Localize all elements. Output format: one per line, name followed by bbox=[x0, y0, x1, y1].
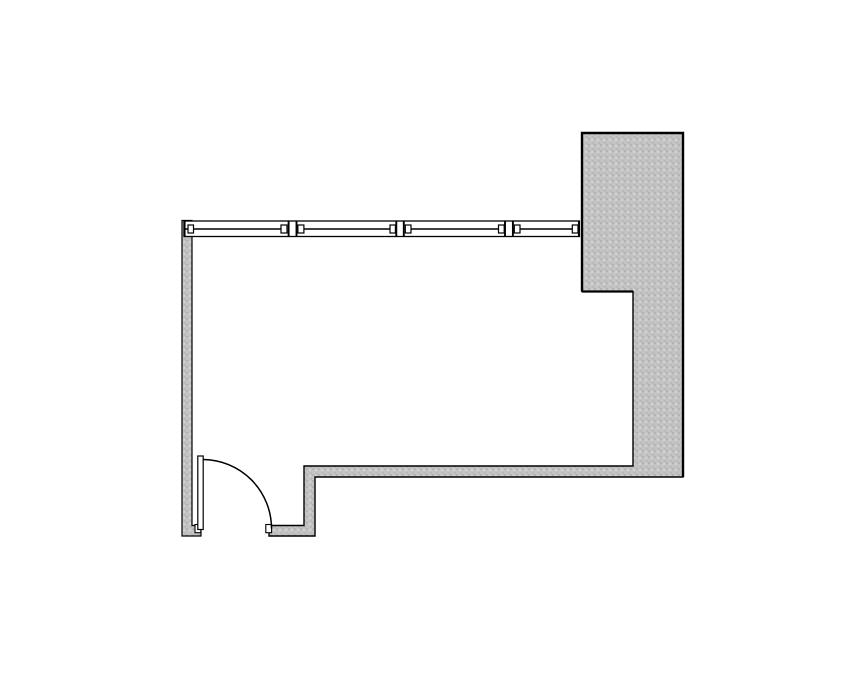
window-end-block bbox=[514, 225, 520, 233]
door-leaf bbox=[198, 456, 203, 530]
window-end-block bbox=[405, 225, 411, 233]
window-end-block bbox=[499, 225, 505, 233]
window-end-block bbox=[572, 225, 578, 233]
floorplan-page bbox=[0, 0, 855, 678]
window-end-block bbox=[298, 225, 304, 233]
window-band bbox=[184, 221, 579, 237]
floorplan-svg bbox=[0, 0, 855, 678]
window-end-block bbox=[281, 225, 287, 233]
window-end-block bbox=[390, 225, 395, 233]
drawing-background bbox=[0, 0, 855, 678]
window-end-block bbox=[188, 225, 194, 233]
